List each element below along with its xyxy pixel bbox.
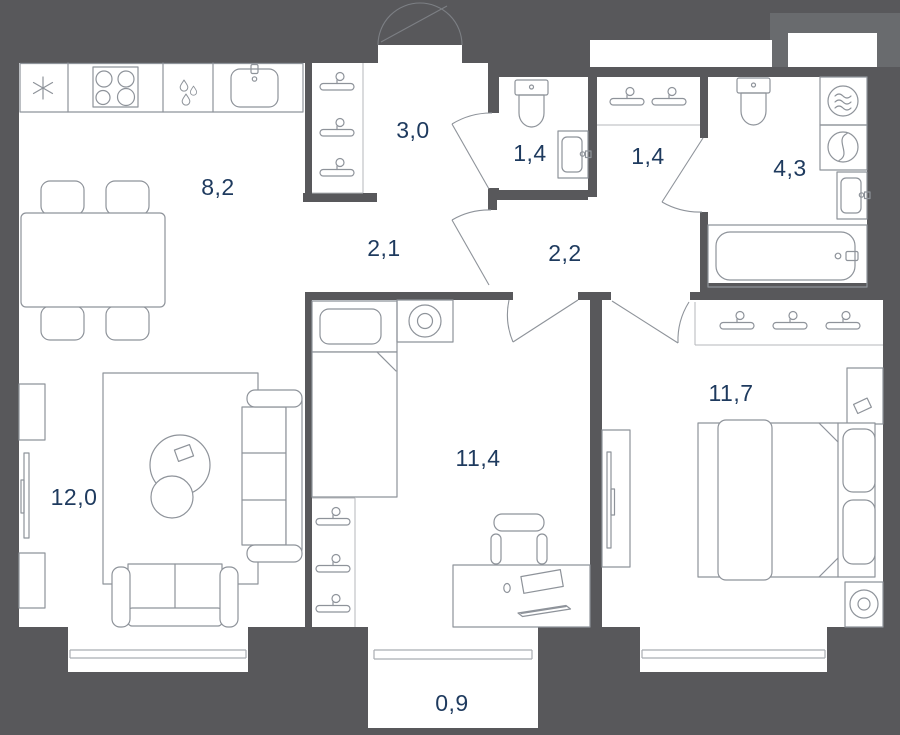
opening-bathroom-door bbox=[700, 138, 708, 212]
pillow bbox=[843, 500, 875, 564]
opening-bedroom-small-door bbox=[513, 292, 578, 300]
double-bed bbox=[698, 420, 875, 580]
exterior-notch bbox=[788, 33, 877, 67]
room-label-living: 12,0 bbox=[51, 484, 98, 510]
loveseat-armrest bbox=[220, 567, 238, 627]
sofa bbox=[242, 390, 302, 562]
opening-wc-door bbox=[488, 113, 499, 188]
chair-arm bbox=[537, 534, 547, 564]
exterior-shaft-strip bbox=[590, 40, 772, 67]
room-wardrobe-hall bbox=[597, 77, 700, 292]
floor-plan-canvas: 8,2 3,0 1,4 1,4 4,3 2,1 2,2 12,0 11,4 11… bbox=[0, 0, 900, 735]
wall-stub-closet bbox=[303, 193, 377, 202]
loveseat-armrest bbox=[112, 567, 130, 627]
room-wc bbox=[499, 77, 588, 190]
loveseat bbox=[112, 564, 238, 627]
room-label-wc: 1,4 bbox=[513, 140, 546, 166]
room-label-balcony: 0,9 bbox=[435, 690, 468, 716]
blanket bbox=[718, 420, 772, 580]
opening-kitchen-corridor bbox=[305, 202, 312, 292]
room-label-kitchen: 8,2 bbox=[201, 174, 234, 200]
room-label-corridor: 2,1 bbox=[367, 235, 400, 261]
dining-chair bbox=[41, 181, 84, 215]
loveseat-back bbox=[128, 608, 222, 626]
opening-bedroom-master-door bbox=[611, 292, 690, 300]
sofa-armrest bbox=[247, 545, 302, 562]
chair-back bbox=[494, 514, 544, 531]
room-label-bathroom: 4,3 bbox=[773, 155, 806, 181]
desk bbox=[453, 565, 590, 627]
dining-chair bbox=[41, 306, 84, 340]
sofa-back bbox=[286, 396, 302, 554]
bed-sheet bbox=[312, 352, 397, 497]
floor-plan-svg: 8,2 3,0 1,4 1,4 4,3 2,1 2,2 12,0 11,4 11… bbox=[0, 0, 900, 735]
room-label-wardrobe-hall: 1,4 bbox=[631, 143, 664, 169]
dining-table bbox=[21, 213, 165, 307]
pillow bbox=[320, 309, 381, 344]
dining-chair bbox=[106, 181, 149, 215]
sofa-armrest bbox=[247, 390, 302, 407]
pillow bbox=[843, 429, 875, 492]
chair-arm bbox=[491, 534, 501, 564]
room-label-bedroom-master: 11,7 bbox=[708, 380, 753, 406]
coffee-table-small bbox=[151, 476, 193, 518]
room-label-entry-hall: 2,2 bbox=[548, 240, 581, 266]
room-label-bedroom-small: 11,4 bbox=[455, 445, 500, 471]
opening-entrance bbox=[378, 45, 462, 63]
sofa-seat bbox=[242, 407, 286, 545]
single-bed bbox=[312, 301, 397, 497]
dining-chair bbox=[106, 306, 149, 340]
room-label-hallway: 3,0 bbox=[396, 117, 429, 143]
